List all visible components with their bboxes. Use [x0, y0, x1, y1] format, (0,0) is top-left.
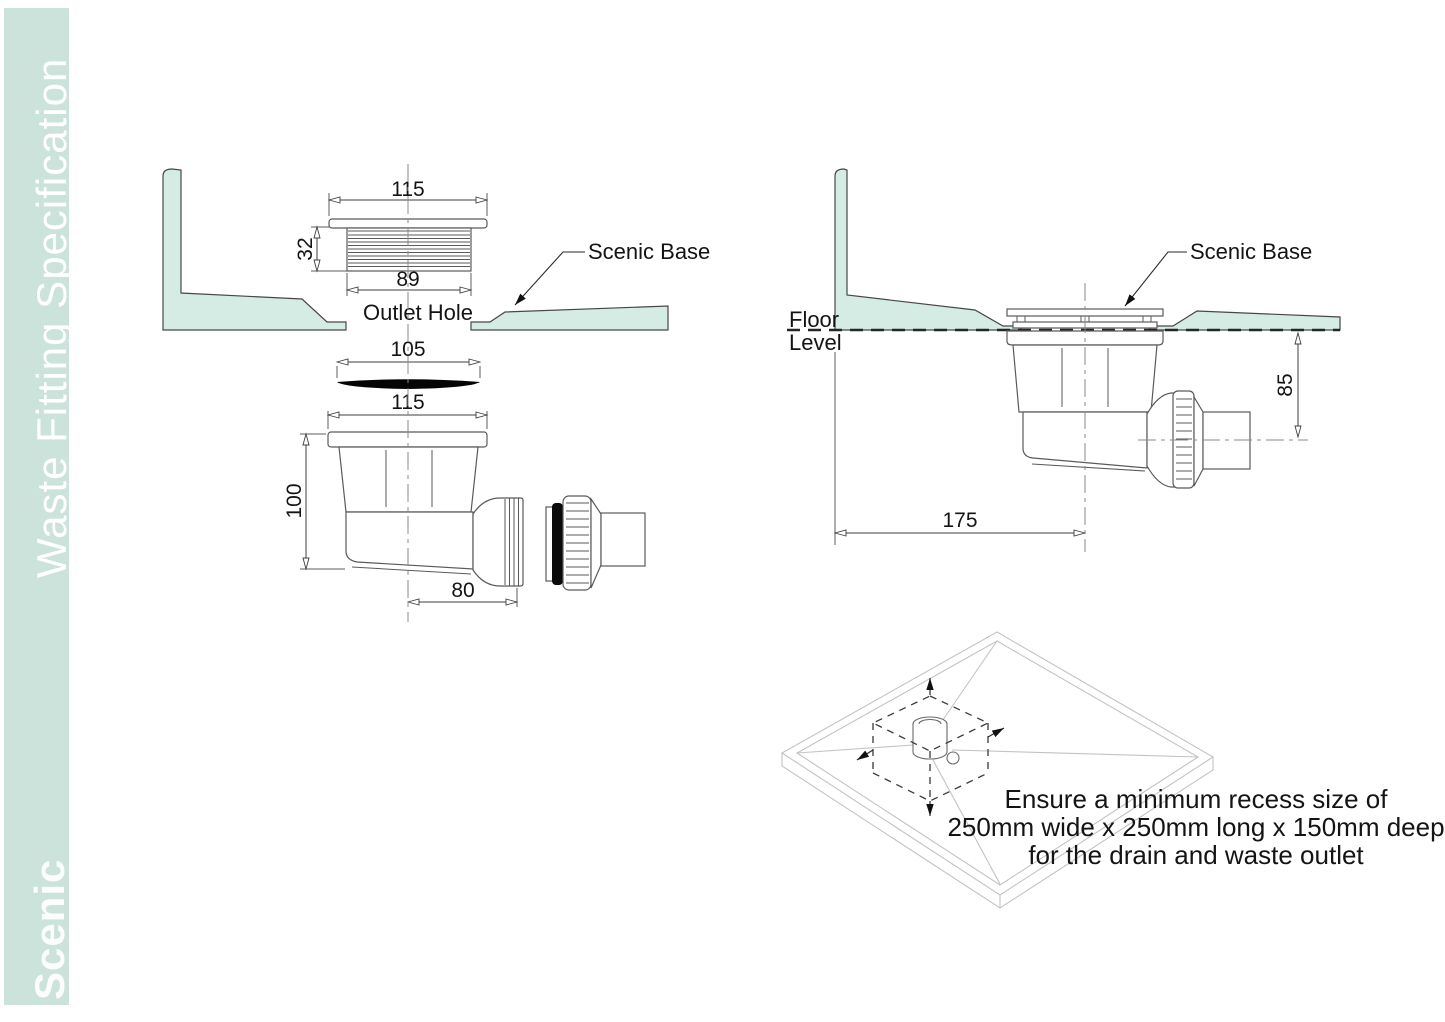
scenic-base-label-left: Scenic Base	[588, 239, 710, 264]
connector-shoulder	[1194, 397, 1203, 486]
dim-outlet-depth: 85	[1274, 333, 1298, 437]
recess-note-line1: Ensure a minimum recess size of	[1005, 784, 1389, 814]
tray-right-half	[471, 306, 668, 330]
dim-text-trap-height: 100	[283, 483, 306, 518]
dim-thread-height: 32	[294, 227, 348, 271]
dim-text-outlet-depth: 85	[1274, 373, 1297, 396]
dim-text-thread-height: 32	[294, 237, 317, 260]
recess-note-line3: for the drain and waste outlet	[1028, 840, 1364, 870]
tray-left-half	[835, 169, 1021, 330]
flange-grate-plate	[1007, 309, 1163, 316]
scenic-base-label-right: Scenic Base	[1190, 239, 1312, 264]
floor-label-line1: Floor	[789, 307, 839, 332]
right-section-drawing: Floor Level 85 175 Scenic B	[787, 169, 1340, 552]
dim-trap-height: 100	[283, 434, 345, 569]
scenic-base-callout-left: Scenic Base	[515, 239, 710, 305]
connector-shoulder	[591, 499, 601, 588]
recess-arrow-left	[857, 750, 873, 760]
outlet-hole-label: Outlet Hole	[363, 300, 473, 325]
trap-body	[328, 432, 523, 586]
dim-text-wall-to-outlet: 175	[942, 509, 977, 532]
trap-cup	[346, 512, 473, 569]
waste-trap-isometric	[913, 717, 959, 764]
dim-thread-width: 89	[347, 268, 471, 296]
recess-note-line2: 250mm wide x 250mm long x 150mm deep	[947, 812, 1444, 842]
left-section-drawing: 115 32 89 Outlet Hole 105 115 100	[163, 164, 710, 622]
dim-text-outlet-offset: 80	[451, 579, 474, 602]
trap-body-installed	[1007, 331, 1250, 488]
connector-face	[546, 507, 553, 581]
outlet-connector	[546, 496, 645, 590]
connector-o-ring	[552, 503, 563, 585]
connector-pipe	[601, 513, 645, 566]
trap-side-outlet	[947, 752, 959, 764]
isometric-recess-view: Ensure a minimum recess size of 250mm wi…	[782, 632, 1445, 908]
flange-fixing-tabs	[1017, 316, 1151, 322]
trap-outlet-bell	[473, 498, 523, 586]
floor-label-line2: Level	[789, 330, 842, 355]
tray-right-half	[1150, 311, 1340, 330]
waste-fitting-specification-drawing: 115 32 89 Outlet Hole 105 115 100	[0, 0, 1445, 1022]
recess-arrow-right	[988, 728, 1004, 737]
recess-note: Ensure a minimum recess size of 250mm wi…	[947, 784, 1444, 870]
scenic-base-callout-right: Scenic Base	[1125, 239, 1312, 306]
tray-left-half	[163, 169, 346, 330]
